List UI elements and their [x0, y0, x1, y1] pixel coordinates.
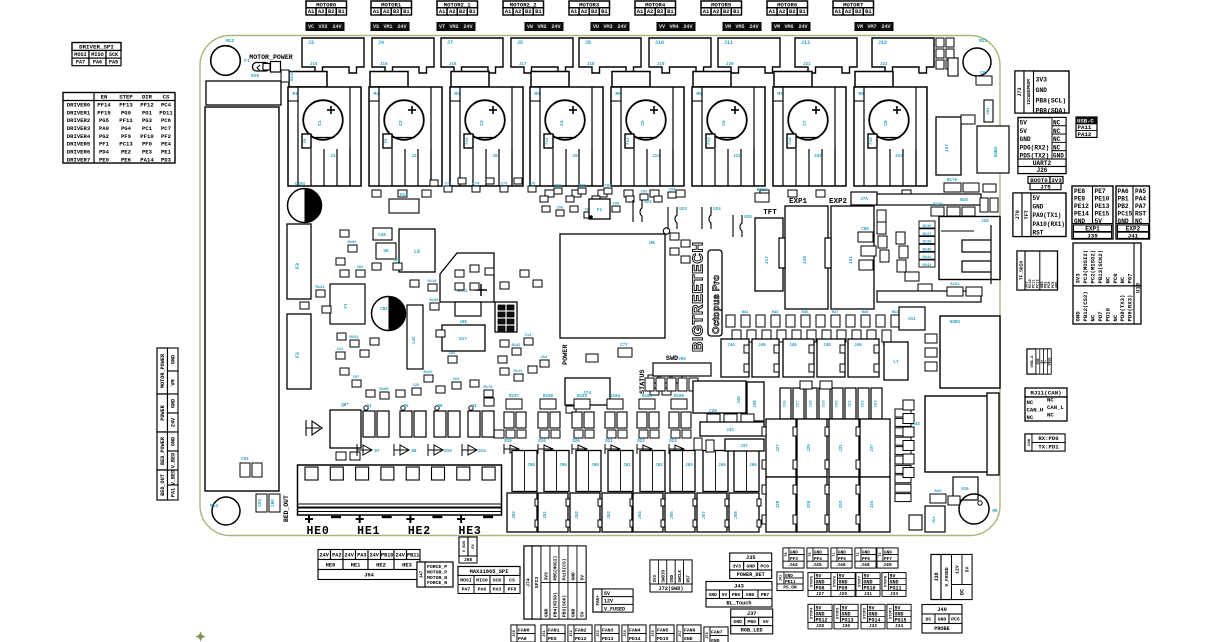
svg-text:C72: C72: [445, 183, 453, 187]
svg-text:PA10(RX1): PA10(RX1): [1033, 221, 1065, 228]
svg-text:J18: J18: [587, 63, 595, 67]
svg-text:F8: F8: [304, 138, 308, 143]
svg-text:PB8(SCL): PB8(SCL): [1036, 97, 1067, 104]
svg-text:DRIVER1: DRIVER1: [67, 109, 91, 116]
svg-text:V_BUS: V_BUS: [463, 540, 467, 552]
svg-text:SCK: SCK: [493, 578, 502, 584]
svg-text:B2: B2: [657, 9, 663, 15]
svg-text:VXX: VXX: [318, 24, 327, 30]
svg-text:Octopus Pro: Octopus Pro: [711, 275, 722, 334]
svg-text:FAN5: FAN5: [657, 628, 669, 634]
svg-text:MOTOR_N: MOTOR_N: [427, 575, 447, 581]
svg-text:VS: VS: [373, 24, 379, 30]
svg-text:5V: 5V: [722, 592, 728, 598]
svg-text:PB5(MOSI): PB5(MOSI): [552, 556, 558, 581]
svg-text:J58: J58: [527, 464, 535, 468]
svg-text:PS_ON: PS_ON: [783, 586, 797, 591]
svg-text:1R0: 1R0: [272, 499, 276, 507]
svg-text:J41: J41: [780, 575, 784, 581]
svg-text:BED_POWER: BED_POWER: [160, 436, 166, 465]
svg-text:PC12: PC12: [1036, 279, 1040, 288]
svg-text:CAN: CAN: [1028, 438, 1032, 446]
svg-text:PA12: PA12: [1078, 131, 1092, 138]
svg-text:J65: J65: [718, 464, 726, 468]
svg-text:J23: J23: [875, 400, 879, 408]
svg-text:SWD: SWD: [666, 355, 678, 363]
svg-text:M5: M5: [616, 91, 622, 97]
svg-text:PF15: PF15: [97, 109, 111, 116]
svg-text:HE3: HE3: [459, 525, 482, 538]
svg-text:DC: DC: [926, 616, 932, 622]
svg-text:R41: R41: [742, 311, 750, 315]
svg-text:J43: J43: [734, 584, 744, 590]
svg-text:C8: C8: [883, 120, 889, 126]
svg-text:PA6: PA6: [93, 60, 102, 66]
svg-text:PG1: PG1: [142, 109, 153, 116]
svg-text:A2: A2: [318, 9, 324, 15]
svg-text:NC: NC: [1027, 399, 1034, 406]
svg-text:J47: J47: [420, 570, 424, 578]
svg-text:GND: GND: [746, 563, 755, 569]
svg-text:R46: R46: [934, 490, 942, 494]
svg-text:B1: B1: [601, 9, 607, 15]
svg-text:D23: D23: [669, 440, 677, 444]
svg-text:J48: J48: [861, 562, 870, 568]
svg-text:U8: U8: [383, 250, 389, 254]
svg-text:C26: C26: [413, 384, 421, 388]
svg-text:J11: J11: [724, 40, 733, 46]
svg-text:DRIVER2: DRIVER2: [67, 117, 91, 124]
svg-text:A2: A2: [845, 9, 851, 15]
svg-text:PF2: PF2: [161, 133, 172, 140]
svg-text:J64: J64: [364, 572, 374, 578]
svg-text:J45: J45: [738, 396, 742, 404]
svg-text:EXP2: EXP2: [829, 198, 848, 206]
svg-text:J18: J18: [810, 400, 814, 408]
svg-text:24V: 24V: [551, 24, 560, 30]
svg-text:EXP2: EXP2: [1126, 225, 1141, 232]
svg-text:TF_SDIO: TF_SDIO: [1019, 261, 1025, 281]
svg-text:SWDIO: SWDIO: [662, 569, 666, 582]
svg-text:M3: M3: [455, 91, 461, 97]
svg-text:J40: J40: [937, 607, 947, 613]
svg-text:FORCE_P: FORCE_P: [427, 564, 447, 570]
svg-text:Q4: Q4: [471, 405, 477, 409]
svg-text:PA7: PA7: [462, 587, 471, 593]
svg-text:J53: J53: [608, 511, 612, 519]
svg-text:R100: R100: [379, 388, 389, 392]
svg-text:L4C: L4C: [413, 336, 417, 344]
svg-text:POWER: POWER: [160, 404, 166, 420]
svg-text:24V: 24V: [463, 24, 472, 30]
svg-text:C1: C1: [317, 120, 323, 126]
svg-text:GND: GND: [671, 574, 675, 582]
svg-text:PB9(SDA): PB9(SDA): [1036, 108, 1067, 115]
svg-text:VC: VC: [308, 24, 314, 30]
svg-text:Y1: Y1: [343, 303, 349, 309]
svg-text:VT: VT: [439, 24, 445, 30]
svg-text:J8: J8: [585, 40, 591, 46]
svg-text:R107: R107: [509, 395, 520, 399]
svg-text:PB2: PB2: [1118, 203, 1129, 210]
svg-text:VM2: VM2: [537, 24, 546, 30]
svg-text:J14: J14: [310, 63, 318, 67]
svg-text:PB11: PB11: [407, 552, 419, 558]
svg-text:F12: F12: [627, 137, 631, 145]
svg-text:C5: C5: [640, 120, 646, 126]
svg-text:3V3: 3V3: [654, 574, 658, 582]
svg-text:R104: R104: [610, 395, 621, 399]
svg-text:J30: J30: [842, 624, 850, 629]
svg-text:J60: J60: [591, 464, 599, 468]
svg-text:RJ11(CAN): RJ11(CAN): [1030, 390, 1061, 397]
svg-text:C48: C48: [378, 234, 386, 238]
svg-text:POWER: POWER: [562, 344, 570, 365]
svg-text:PB13(SCK2): PB13(SCK2): [1097, 250, 1104, 284]
svg-text:B2: B2: [855, 9, 861, 15]
svg-text:C56: C56: [357, 266, 365, 270]
svg-text:USB1: USB1: [950, 319, 961, 325]
svg-text:C7: C7: [802, 120, 808, 126]
svg-text:MISO: MISO: [91, 52, 103, 58]
svg-text:PG5: PG5: [99, 117, 110, 124]
svg-text:A2: A2: [713, 9, 719, 15]
svg-text:NC: NC: [1135, 218, 1143, 225]
svg-text:J61: J61: [623, 464, 631, 468]
svg-text:HE2: HE2: [408, 525, 431, 538]
svg-text:J74: J74: [526, 578, 532, 587]
svg-text:J54: J54: [933, 516, 937, 524]
svg-text:PD12: PD12: [575, 636, 587, 642]
svg-text:VM6: VM6: [784, 24, 793, 30]
svg-text:FORCE_N: FORCE_N: [427, 580, 447, 586]
svg-text:F15: F15: [870, 137, 874, 145]
svg-text:A1: A1: [505, 9, 511, 15]
svg-text:GND: GND: [1055, 281, 1059, 288]
svg-text:R108: R108: [543, 395, 554, 399]
svg-text:J50: J50: [513, 511, 517, 519]
svg-text:NC: NC: [1112, 314, 1119, 321]
svg-text:M14: M14: [210, 503, 218, 509]
svg-text:C2: C2: [398, 120, 404, 126]
svg-text:D10: D10: [444, 450, 452, 454]
svg-text:R118: R118: [427, 280, 437, 284]
svg-text:NC: NC: [1027, 414, 1034, 421]
svg-text:SWCLK: SWCLK: [679, 569, 683, 582]
svg-text:GND: GND: [543, 608, 549, 617]
svg-text:VM2: VM2: [449, 24, 458, 30]
svg-text:A2: A2: [383, 9, 389, 15]
svg-text:C41: C41: [337, 348, 345, 352]
svg-text:VU: VU: [593, 24, 599, 30]
svg-text:U24: U24: [713, 208, 721, 212]
svg-text:U22: U22: [644, 201, 652, 205]
svg-text:B2: B2: [328, 9, 334, 15]
svg-text:HE1: HE1: [357, 525, 380, 538]
svg-text:VM: VM: [857, 24, 863, 30]
svg-text:VM7: VM7: [867, 24, 876, 30]
svg-text:PE2: PE2: [121, 148, 132, 155]
svg-text:A2: A2: [449, 9, 455, 15]
svg-text:STOP8: STOP8: [885, 575, 889, 587]
svg-text:J63: J63: [685, 464, 693, 468]
svg-text:J8: J8: [492, 153, 498, 159]
svg-text:GND: GND: [938, 616, 947, 622]
svg-text:R170: R170: [947, 179, 958, 183]
svg-text:F1: F1: [597, 207, 603, 213]
svg-text:5V: 5V: [579, 611, 585, 617]
svg-text:U16: U16: [961, 488, 969, 492]
svg-text:R49: R49: [862, 311, 870, 315]
svg-text:PD13: PD13: [602, 636, 614, 642]
svg-text:HE3: HE3: [402, 562, 412, 568]
svg-text:CAN_H: CAN_H: [1027, 407, 1044, 414]
svg-text:TFT: TFT: [763, 209, 777, 217]
svg-text:J17: J17: [764, 256, 770, 264]
svg-text:B1: B1: [535, 9, 541, 15]
svg-text:F2: F2: [295, 352, 301, 358]
svg-text:24V: 24V: [749, 24, 758, 30]
svg-text:J37: J37: [747, 611, 757, 617]
svg-text:5V: 5V: [1020, 128, 1028, 135]
svg-text:C104: C104: [295, 183, 306, 187]
svg-text:M4: M4: [535, 91, 541, 97]
svg-text:GND: GND: [1033, 204, 1044, 211]
svg-text:NC: NC: [1047, 397, 1054, 404]
svg-text:5V: 5V: [763, 619, 769, 625]
svg-text:5V: 5V: [579, 575, 585, 581]
svg-text:J36: J36: [802, 256, 808, 264]
svg-text:J60: J60: [678, 358, 686, 362]
svg-text:R219: R219: [291, 71, 295, 81]
svg-text:C74: C74: [473, 183, 481, 187]
svg-text:J45: J45: [758, 344, 766, 348]
svg-text:J27: J27: [944, 144, 950, 152]
svg-text:VM: VM: [171, 379, 177, 385]
svg-text:F3: F3: [295, 263, 301, 269]
svg-text:F13: F13: [708, 137, 712, 145]
svg-text:BL_Touch: BL_Touch: [727, 601, 752, 607]
svg-text:R103: R103: [577, 395, 588, 399]
svg-text:A1: A1: [308, 9, 314, 15]
svg-text:F11: F11: [546, 137, 550, 145]
svg-text:PD11: PD11: [159, 109, 173, 116]
svg-text:RX:PD0: RX:PD0: [1038, 435, 1059, 442]
svg-text:J1: J1: [330, 153, 336, 159]
svg-text:C88: C88: [861, 228, 869, 232]
svg-text:J16: J16: [784, 400, 788, 408]
svg-text:C77: C77: [620, 344, 628, 348]
svg-text:5V: 5V: [604, 591, 610, 597]
svg-text:VBUS: VBUS: [1047, 358, 1051, 366]
svg-text:FAN2: FAN2: [575, 628, 587, 634]
svg-text:J59: J59: [559, 464, 567, 468]
svg-text:VV: VV: [659, 24, 665, 30]
svg-text:PC1: PC1: [142, 125, 153, 132]
svg-text:J31: J31: [864, 592, 872, 597]
svg-text:GND: GND: [1036, 87, 1048, 94]
svg-text:EXP1: EXP1: [1085, 225, 1100, 232]
svg-text:J27: J27: [816, 592, 824, 597]
svg-text:MISO: MISO: [476, 578, 488, 584]
svg-text:J30: J30: [808, 500, 812, 508]
svg-text:PC2(MISO2): PC2(MISO2): [1089, 250, 1096, 284]
svg-text:B1: B1: [338, 9, 344, 15]
svg-text:J73: J73: [1017, 87, 1023, 96]
svg-text:V_BED: V_BED: [171, 453, 177, 469]
svg-text:STOP3: STOP3: [837, 607, 841, 619]
svg-text:C90: C90: [613, 203, 621, 207]
svg-text:PG7: PG7: [1127, 273, 1134, 283]
svg-text:PE7: PE7: [1095, 188, 1106, 195]
svg-text:J45: J45: [813, 562, 822, 568]
svg-text:PF12: PF12: [140, 102, 154, 109]
svg-text:PD14: PD14: [629, 636, 641, 642]
svg-text:PA6: PA6: [1118, 188, 1129, 195]
svg-text:RST: RST: [1135, 211, 1146, 218]
svg-text:5V: 5V: [1095, 218, 1103, 225]
svg-text:PA2: PA2: [332, 552, 341, 558]
svg-text:PD15: PD15: [657, 636, 669, 642]
svg-text:J36: J36: [754, 400, 758, 408]
svg-text:12V: 12V: [604, 599, 613, 605]
svg-text:A2: A2: [647, 9, 653, 15]
svg-text:B1: B1: [403, 9, 409, 15]
svg-text:J21: J21: [803, 63, 811, 67]
svg-text:24V: 24V: [798, 24, 807, 30]
svg-text:R106: R106: [347, 241, 357, 245]
svg-text:DRIVER_SPI: DRIVER_SPI: [79, 44, 114, 51]
svg-text:C84: C84: [449, 352, 457, 356]
svg-text:PA5: PA5: [1135, 188, 1146, 195]
svg-text:J66: J66: [749, 464, 757, 468]
svg-text:FAN4: FAN4: [629, 628, 641, 634]
svg-text:PF8: PF8: [508, 587, 517, 593]
svg-text:M9: M9: [992, 510, 998, 514]
svg-text:J7: J7: [447, 40, 453, 46]
svg-text:PC5: PC5: [951, 616, 960, 622]
svg-text:CN1: CN1: [380, 308, 388, 312]
svg-text:GND: GND: [711, 638, 720, 642]
svg-text:C92: C92: [641, 191, 649, 195]
svg-text:PA4: PA4: [1135, 196, 1146, 203]
svg-text:J52: J52: [576, 511, 580, 519]
svg-text:R105: R105: [642, 395, 653, 399]
svg-text:J46: J46: [789, 344, 797, 348]
svg-text:A1: A1: [373, 9, 379, 15]
svg-text:J48: J48: [823, 344, 831, 348]
svg-text:J55: J55: [671, 511, 675, 519]
svg-text:VM1: VM1: [383, 24, 392, 30]
svg-text:GND: GND: [570, 572, 576, 581]
svg-text:F10: F10: [466, 137, 470, 145]
svg-text:C82: C82: [579, 185, 587, 189]
svg-text:STOP2: STOP2: [864, 607, 868, 619]
svg-text:PE8: PE8: [1074, 188, 1085, 195]
svg-text:PE14: PE14: [1074, 211, 1089, 218]
svg-text:24V: 24V: [320, 552, 330, 558]
svg-text:EN: EN: [101, 94, 108, 101]
svg-text:VM4: VM4: [669, 24, 678, 30]
svg-text:PD6(RX2): PD6(RX2): [1020, 144, 1050, 151]
svg-text:PB0: PB0: [747, 619, 756, 625]
svg-text:DIR: DIR: [142, 94, 153, 101]
svg-text:RST: RST: [1033, 229, 1044, 236]
svg-text:5V0: 5V0: [251, 73, 259, 79]
svg-text:PD9(RX3): PD9(RX3): [1127, 295, 1134, 322]
svg-text:J28: J28: [777, 500, 781, 508]
svg-text:J39: J39: [1087, 232, 1098, 239]
svg-text:24V: 24V: [396, 552, 406, 558]
svg-text:C84: C84: [605, 185, 613, 189]
svg-text:D22: D22: [637, 440, 645, 444]
svg-text:J7A: J7A: [860, 198, 868, 202]
svg-text:A1: A1: [571, 9, 577, 15]
svg-text:J26: J26: [1037, 167, 1048, 174]
svg-text:PE3: PE3: [142, 148, 153, 155]
svg-text:V_BED: V_BED: [171, 470, 177, 486]
svg-text:FAN+: FAN+: [597, 595, 601, 606]
svg-text:V_FUSED: V_FUSED: [604, 606, 625, 612]
svg-text:J19: J19: [823, 400, 827, 408]
svg-text:R43: R43: [772, 311, 780, 315]
svg-text:R112: R112: [513, 370, 523, 374]
svg-text:C97: C97: [980, 72, 988, 76]
svg-text:HE0: HE0: [326, 562, 336, 568]
svg-text:GND: GND: [1118, 218, 1129, 225]
svg-text:HE2: HE2: [376, 562, 386, 568]
svg-text:GND: GND: [570, 608, 576, 617]
svg-text:C93: C93: [259, 499, 263, 507]
svg-text:J46: J46: [837, 562, 846, 568]
svg-text:C97: C97: [353, 376, 361, 380]
svg-text:FAN7: FAN7: [711, 630, 723, 636]
svg-text:PG2: PG2: [99, 133, 110, 140]
svg-text:J34: J34: [895, 624, 903, 629]
svg-text:J49: J49: [883, 562, 892, 568]
svg-text:J51: J51: [544, 511, 548, 519]
svg-text:U17: U17: [459, 336, 467, 342]
svg-text:J49: J49: [854, 344, 862, 348]
svg-text:PD8(TX3): PD8(TX3): [1119, 295, 1126, 322]
svg-text:PA0: PA0: [99, 125, 110, 132]
svg-text:J2: J2: [411, 153, 417, 159]
svg-text:PF1: PF1: [99, 141, 110, 148]
svg-text:A1: A1: [637, 9, 643, 15]
svg-text:B1: B1: [799, 9, 805, 15]
svg-text:PC4: PC4: [161, 102, 172, 109]
svg-text:PE10: PE10: [1095, 196, 1110, 203]
svg-text:USB-A: USB-A: [1031, 355, 1035, 368]
svg-text:NC: NC: [1104, 276, 1111, 283]
svg-text:PA14: PA14: [140, 156, 154, 163]
svg-text:PC0: PC0: [760, 563, 769, 569]
svg-text:FAN6: FAN6: [684, 628, 696, 634]
svg-text:MOSI: MOSI: [74, 52, 86, 58]
svg-text:F1: F1: [244, 58, 250, 64]
svg-text:NC: NC: [1047, 412, 1054, 419]
svg-text:F9: F9: [385, 138, 389, 143]
svg-text:PD4: PD4: [99, 148, 110, 155]
svg-text:L7: L7: [893, 359, 899, 365]
svg-text:PB10: PB10: [381, 552, 393, 558]
svg-text:PE15: PE15: [1095, 211, 1110, 218]
svg-text:GND: GND: [171, 355, 177, 364]
svg-text:DRIVER5: DRIVER5: [67, 141, 91, 148]
svg-text:FAN1: FAN1: [548, 628, 560, 634]
svg-text:J32: J32: [840, 500, 844, 508]
svg-text:CS: CS: [509, 578, 515, 584]
